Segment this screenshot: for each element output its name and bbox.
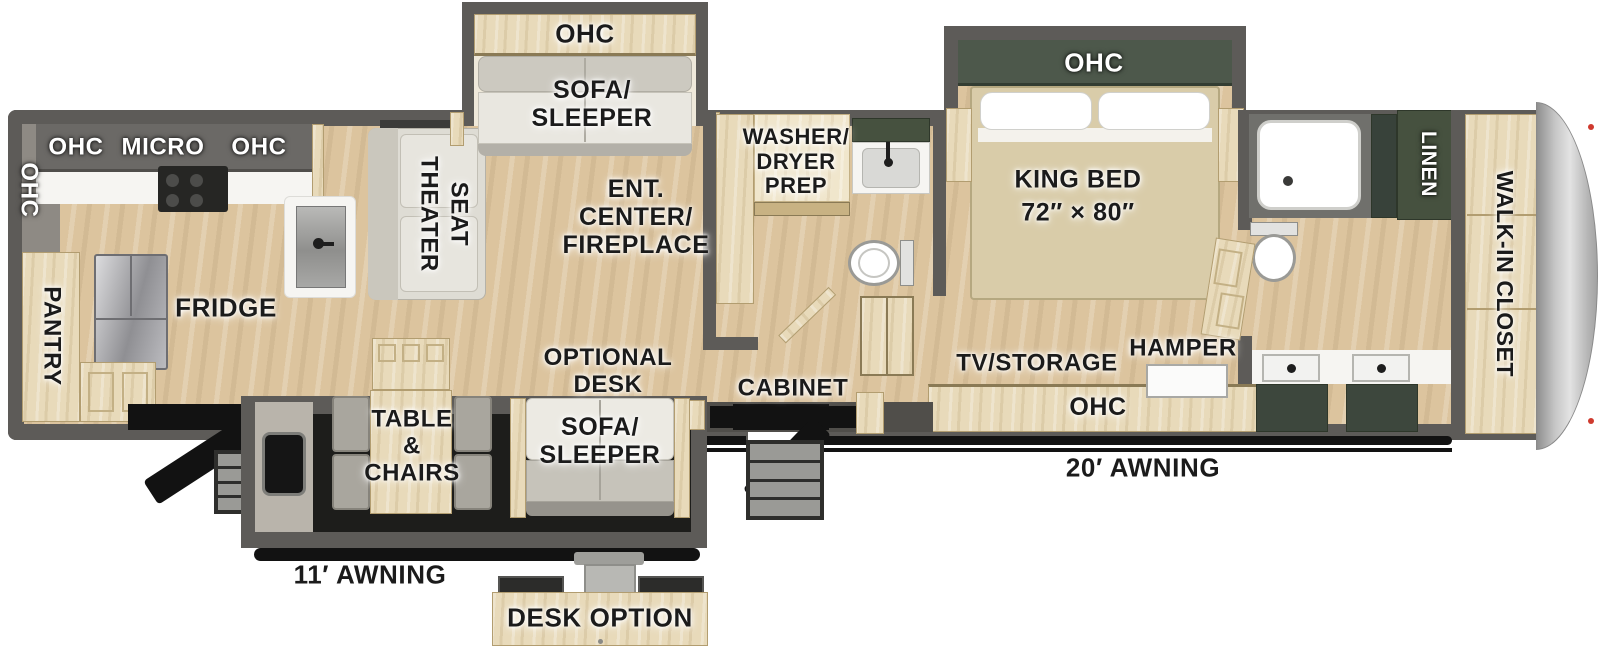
step-tread xyxy=(750,444,820,460)
label-ohc-kitchen-2: OHC xyxy=(231,135,286,162)
vanity-counter xyxy=(1346,384,1418,432)
faucet-icon xyxy=(884,158,893,167)
label-table-chairs: TABLE & CHAIRS xyxy=(364,407,460,488)
desk-knob-icon xyxy=(598,639,603,644)
bed-sheet-fold xyxy=(978,128,1212,142)
stove-burner xyxy=(166,174,179,187)
pillow xyxy=(980,92,1092,130)
faucet-icon xyxy=(1377,364,1386,373)
label-desk-option: DESK OPTION xyxy=(507,603,693,632)
label-hamper: HAMPER xyxy=(1129,336,1237,363)
hutch-panel xyxy=(426,344,444,362)
label-sofa-sleeper-bottom: SOFA/ SLEEPER xyxy=(540,413,661,469)
pillow xyxy=(1098,92,1210,130)
awning-20-bar xyxy=(824,436,1452,445)
awning-20-bar-inner xyxy=(824,448,1452,452)
slide-window xyxy=(262,432,306,496)
cabinet-end-block xyxy=(856,392,884,434)
label-theater: THEATER xyxy=(415,156,442,272)
toilet-bowl-inner xyxy=(858,248,890,278)
stove-burner xyxy=(190,194,203,207)
label-awning-11: 11′ AWNING xyxy=(294,560,447,589)
bath-sink-basin xyxy=(862,148,920,188)
shower-pan xyxy=(1257,120,1361,210)
cap-marker xyxy=(1588,124,1594,130)
bath-wall-right xyxy=(933,110,946,296)
label-king-bed: KING BED 72″ × 80″ xyxy=(1014,164,1141,229)
hutch-panel xyxy=(378,344,396,362)
label-ohc-kitchen-1: OHC xyxy=(48,135,103,162)
toilet-tank xyxy=(900,240,914,286)
label-walk-in-closet: WALK-IN CLOSET xyxy=(1491,171,1517,377)
label-ent-center: ENT. CENTER/ FIREPLACE xyxy=(562,175,709,259)
stove-burner xyxy=(190,174,203,187)
label-ohc-bottom: OHC xyxy=(1069,393,1126,421)
label-bed-ohc: OHC xyxy=(1064,48,1124,77)
fridge-freezer-seam xyxy=(96,318,166,320)
shower-drain-icon xyxy=(1283,176,1293,186)
label-theater-seat: SEAT xyxy=(445,182,472,247)
kitchen-cabinet-end xyxy=(312,124,324,202)
theater-seat-back xyxy=(368,128,398,300)
label-pantry: PANTRY xyxy=(38,286,65,386)
label-awning-20: 20′ AWNING xyxy=(1066,453,1220,482)
sofa2-armrest xyxy=(674,398,690,518)
stove-burner xyxy=(166,194,179,207)
bedroom-steps-divider xyxy=(886,298,888,374)
label-ohc-side: OHC xyxy=(15,162,42,217)
toilet-bowl xyxy=(1252,234,1296,282)
label-washer-dryer: WASHER/ DRYER PREP xyxy=(743,125,850,199)
washer-dryer-drawers xyxy=(754,202,850,216)
fridge-door-seam xyxy=(130,256,132,316)
label-fridge: FRIDGE xyxy=(175,293,277,322)
step-tread xyxy=(750,463,820,479)
bath-wall-bottom xyxy=(703,337,758,350)
label-linen: LINEN xyxy=(1416,131,1440,197)
label-tv-storage: TV/STORAGE xyxy=(956,351,1118,378)
closet-wall xyxy=(1451,110,1465,440)
vanity-counter xyxy=(1256,384,1328,432)
sofa-front xyxy=(478,144,692,156)
slide-trim xyxy=(450,112,464,146)
nightstand xyxy=(946,108,972,182)
faucet-icon xyxy=(1287,364,1296,373)
cabinet-panel xyxy=(88,372,114,412)
hamper xyxy=(1146,364,1228,398)
label-cabinet: CABINET xyxy=(738,376,849,403)
label-optional-desk: OPTIONAL DESK xyxy=(544,345,673,399)
shower-side-cabinet xyxy=(1371,114,1397,218)
sofa2-armrest xyxy=(510,398,526,518)
rv-floorplan: OHC MICRO OHC OHC PANTRY FRIDGE THEATER … xyxy=(0,0,1600,650)
step-tread xyxy=(750,500,820,516)
hutch-panel xyxy=(402,344,420,362)
label-sofa-sleeper-top: SOFA/ SLEEPER xyxy=(532,76,653,132)
slide-trim xyxy=(689,400,705,430)
label-slide-ohc: OHC xyxy=(555,19,615,48)
sofa2-front xyxy=(526,502,674,516)
label-micro: MICRO xyxy=(122,135,205,162)
step-tread xyxy=(750,482,820,498)
faucet-icon xyxy=(313,238,324,249)
entry-steps-main xyxy=(746,440,824,520)
bath-sink-counter xyxy=(852,118,930,142)
cap-marker xyxy=(1588,418,1594,424)
front-cap xyxy=(1536,102,1598,450)
